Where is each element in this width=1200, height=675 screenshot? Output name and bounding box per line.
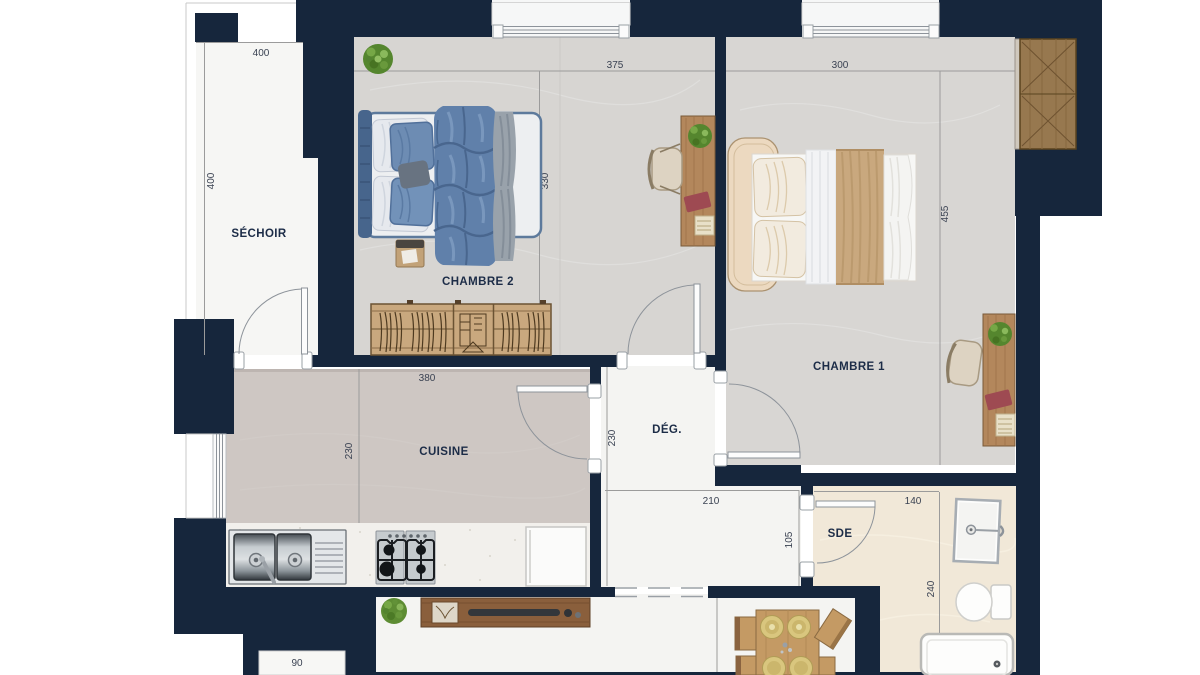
svg-text:CHAMBRE 2: CHAMBRE 2 xyxy=(442,276,514,288)
svg-text:SDE: SDE xyxy=(828,528,853,540)
svg-text:140: 140 xyxy=(905,496,922,507)
svg-text:105: 105 xyxy=(784,531,795,548)
svg-text:90: 90 xyxy=(291,658,303,669)
svg-text:230: 230 xyxy=(607,429,618,446)
svg-text:380: 380 xyxy=(419,373,436,384)
svg-text:CUISINE: CUISINE xyxy=(419,446,468,458)
svg-text:DÉG.: DÉG. xyxy=(652,423,682,436)
svg-text:SÉCHOIR: SÉCHOIR xyxy=(231,227,286,240)
svg-text:455: 455 xyxy=(940,205,951,222)
svg-text:400: 400 xyxy=(253,48,270,59)
svg-text:300: 300 xyxy=(832,60,849,71)
svg-text:230: 230 xyxy=(344,442,355,459)
svg-text:CHAMBRE 1: CHAMBRE 1 xyxy=(813,361,885,373)
svg-text:240: 240 xyxy=(926,580,937,597)
svg-text:210: 210 xyxy=(703,496,720,507)
svg-text:400: 400 xyxy=(206,172,217,189)
svg-text:375: 375 xyxy=(607,60,624,71)
